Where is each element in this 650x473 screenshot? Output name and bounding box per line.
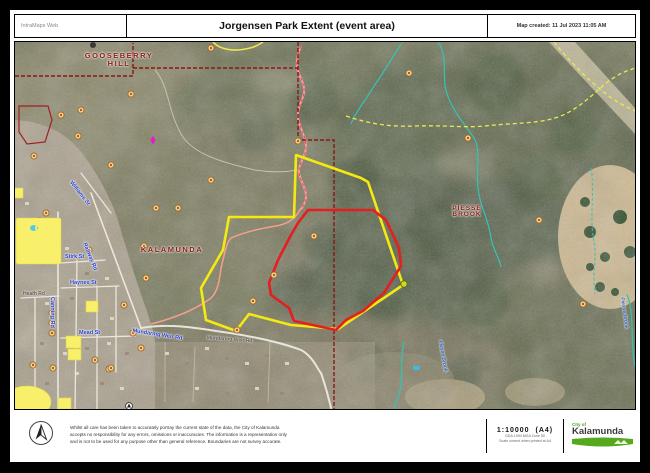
city-of-kalamunda-logo: City of Kalamunda xyxy=(564,423,636,449)
map-symbol-dark-icon xyxy=(90,42,96,48)
page-size: (A4) xyxy=(535,427,553,434)
print-page: IntraMaps Web Jorgensen Park Extent (eve… xyxy=(10,10,640,462)
swimming-pool xyxy=(413,366,420,370)
aerial-imagery xyxy=(15,42,635,409)
map-created-timestamp: Map created: 11 Jul 2023 11:05 AM xyxy=(487,15,635,37)
aerial-map-canvas[interactable] xyxy=(15,42,635,409)
disclaimer-text: Whilst all care has been taken to accura… xyxy=(70,425,362,446)
app-label: IntraMaps Web xyxy=(15,15,127,37)
north-arrow-icon xyxy=(28,420,54,451)
scale-ratio: 1:10000 xyxy=(497,427,530,434)
logo-swoosh-icon xyxy=(572,437,634,448)
poi-marker-green-icon[interactable] xyxy=(401,281,407,287)
map-footer: Whilst all care has been taken to accura… xyxy=(14,413,636,458)
scale-block: 1:10000 (A4) GDA 1994 MGA Zone 50 Scale … xyxy=(487,427,563,445)
map-symbol-icon xyxy=(126,403,133,409)
map-viewport[interactable]: GOOSEBERRY HILL KALAMUNDA PIESSE BROOK R… xyxy=(14,41,636,410)
scale-note-2: Scale correct when printed at A4 xyxy=(487,439,563,444)
map-title: Jorgensen Park Extent (event area) xyxy=(127,15,487,37)
logo-name: Kalamunda xyxy=(572,427,623,437)
map-header: IntraMaps Web Jorgensen Park Extent (eve… xyxy=(14,14,636,38)
